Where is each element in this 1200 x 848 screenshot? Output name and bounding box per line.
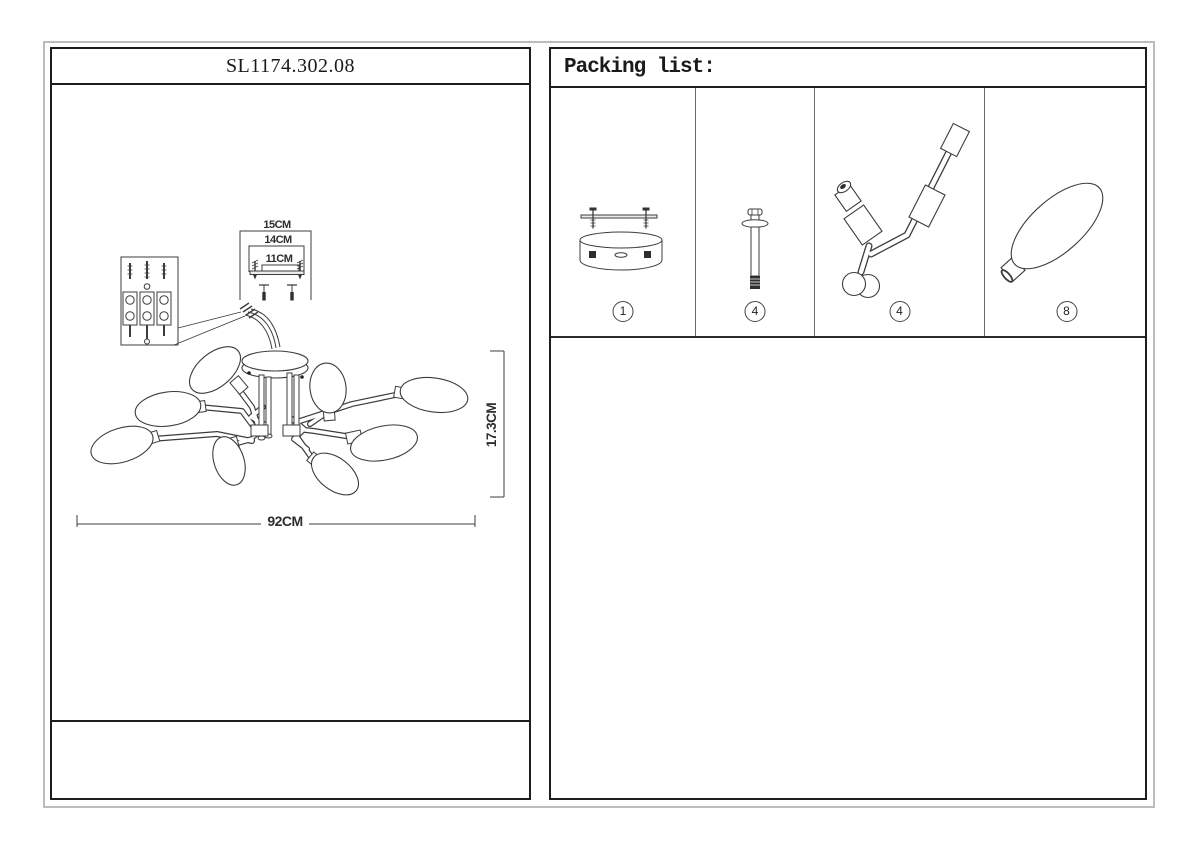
qty-badge: 4 [745,301,766,322]
title-row: SL1174.302.08 [52,49,529,85]
dimension-label-11cm: 11CM [266,253,293,265]
packing-list-header: Packing list: [551,49,1145,88]
dimension-label-15cm: 15CM [263,219,291,231]
terminal-block-detail [121,257,178,345]
left-panel-footer [52,720,529,798]
supply-wires [240,303,280,349]
dimension-label-height: 17.3CM [484,403,499,448]
packing-items-row: 1 4 [551,88,1145,338]
hanging-bolts [259,285,297,301]
glass-shade-drawing [985,88,1148,336]
dimension-label-14cm: 14CM [264,234,292,246]
drawing-area: 15CM 14CM 11CM [52,85,529,720]
hanging-screw-drawing [696,88,814,336]
qty-badge: 4 [889,301,910,322]
qty-badge: 8 [1056,301,1077,322]
detail-leader-lines [174,312,245,345]
packing-list-title: Packing list: [564,56,715,79]
instruction-sheet: SL1174.302.08 15CM 14CM 11CM [0,0,1200,848]
dimension-label-width: 92CM [267,513,302,529]
drawing-panel: SL1174.302.08 15CM 14CM 11CM [50,47,531,800]
packing-item-shade: 8 [984,88,1148,336]
center-rods [251,373,300,440]
packing-item-canopy: 1 [551,88,695,336]
packing-item-arm: 4 [814,88,984,336]
packing-item-screw: 4 [695,88,814,336]
canopy-mount-drawing [551,88,695,336]
qty-badge: 1 [613,301,634,322]
lamp-arm-drawing [815,88,984,336]
packing-list-panel: Packing list: [549,47,1147,800]
fixture-technical-drawing: 15CM 14CM 11CM [52,85,529,720]
model-number: SL1174.302.08 [226,55,355,78]
